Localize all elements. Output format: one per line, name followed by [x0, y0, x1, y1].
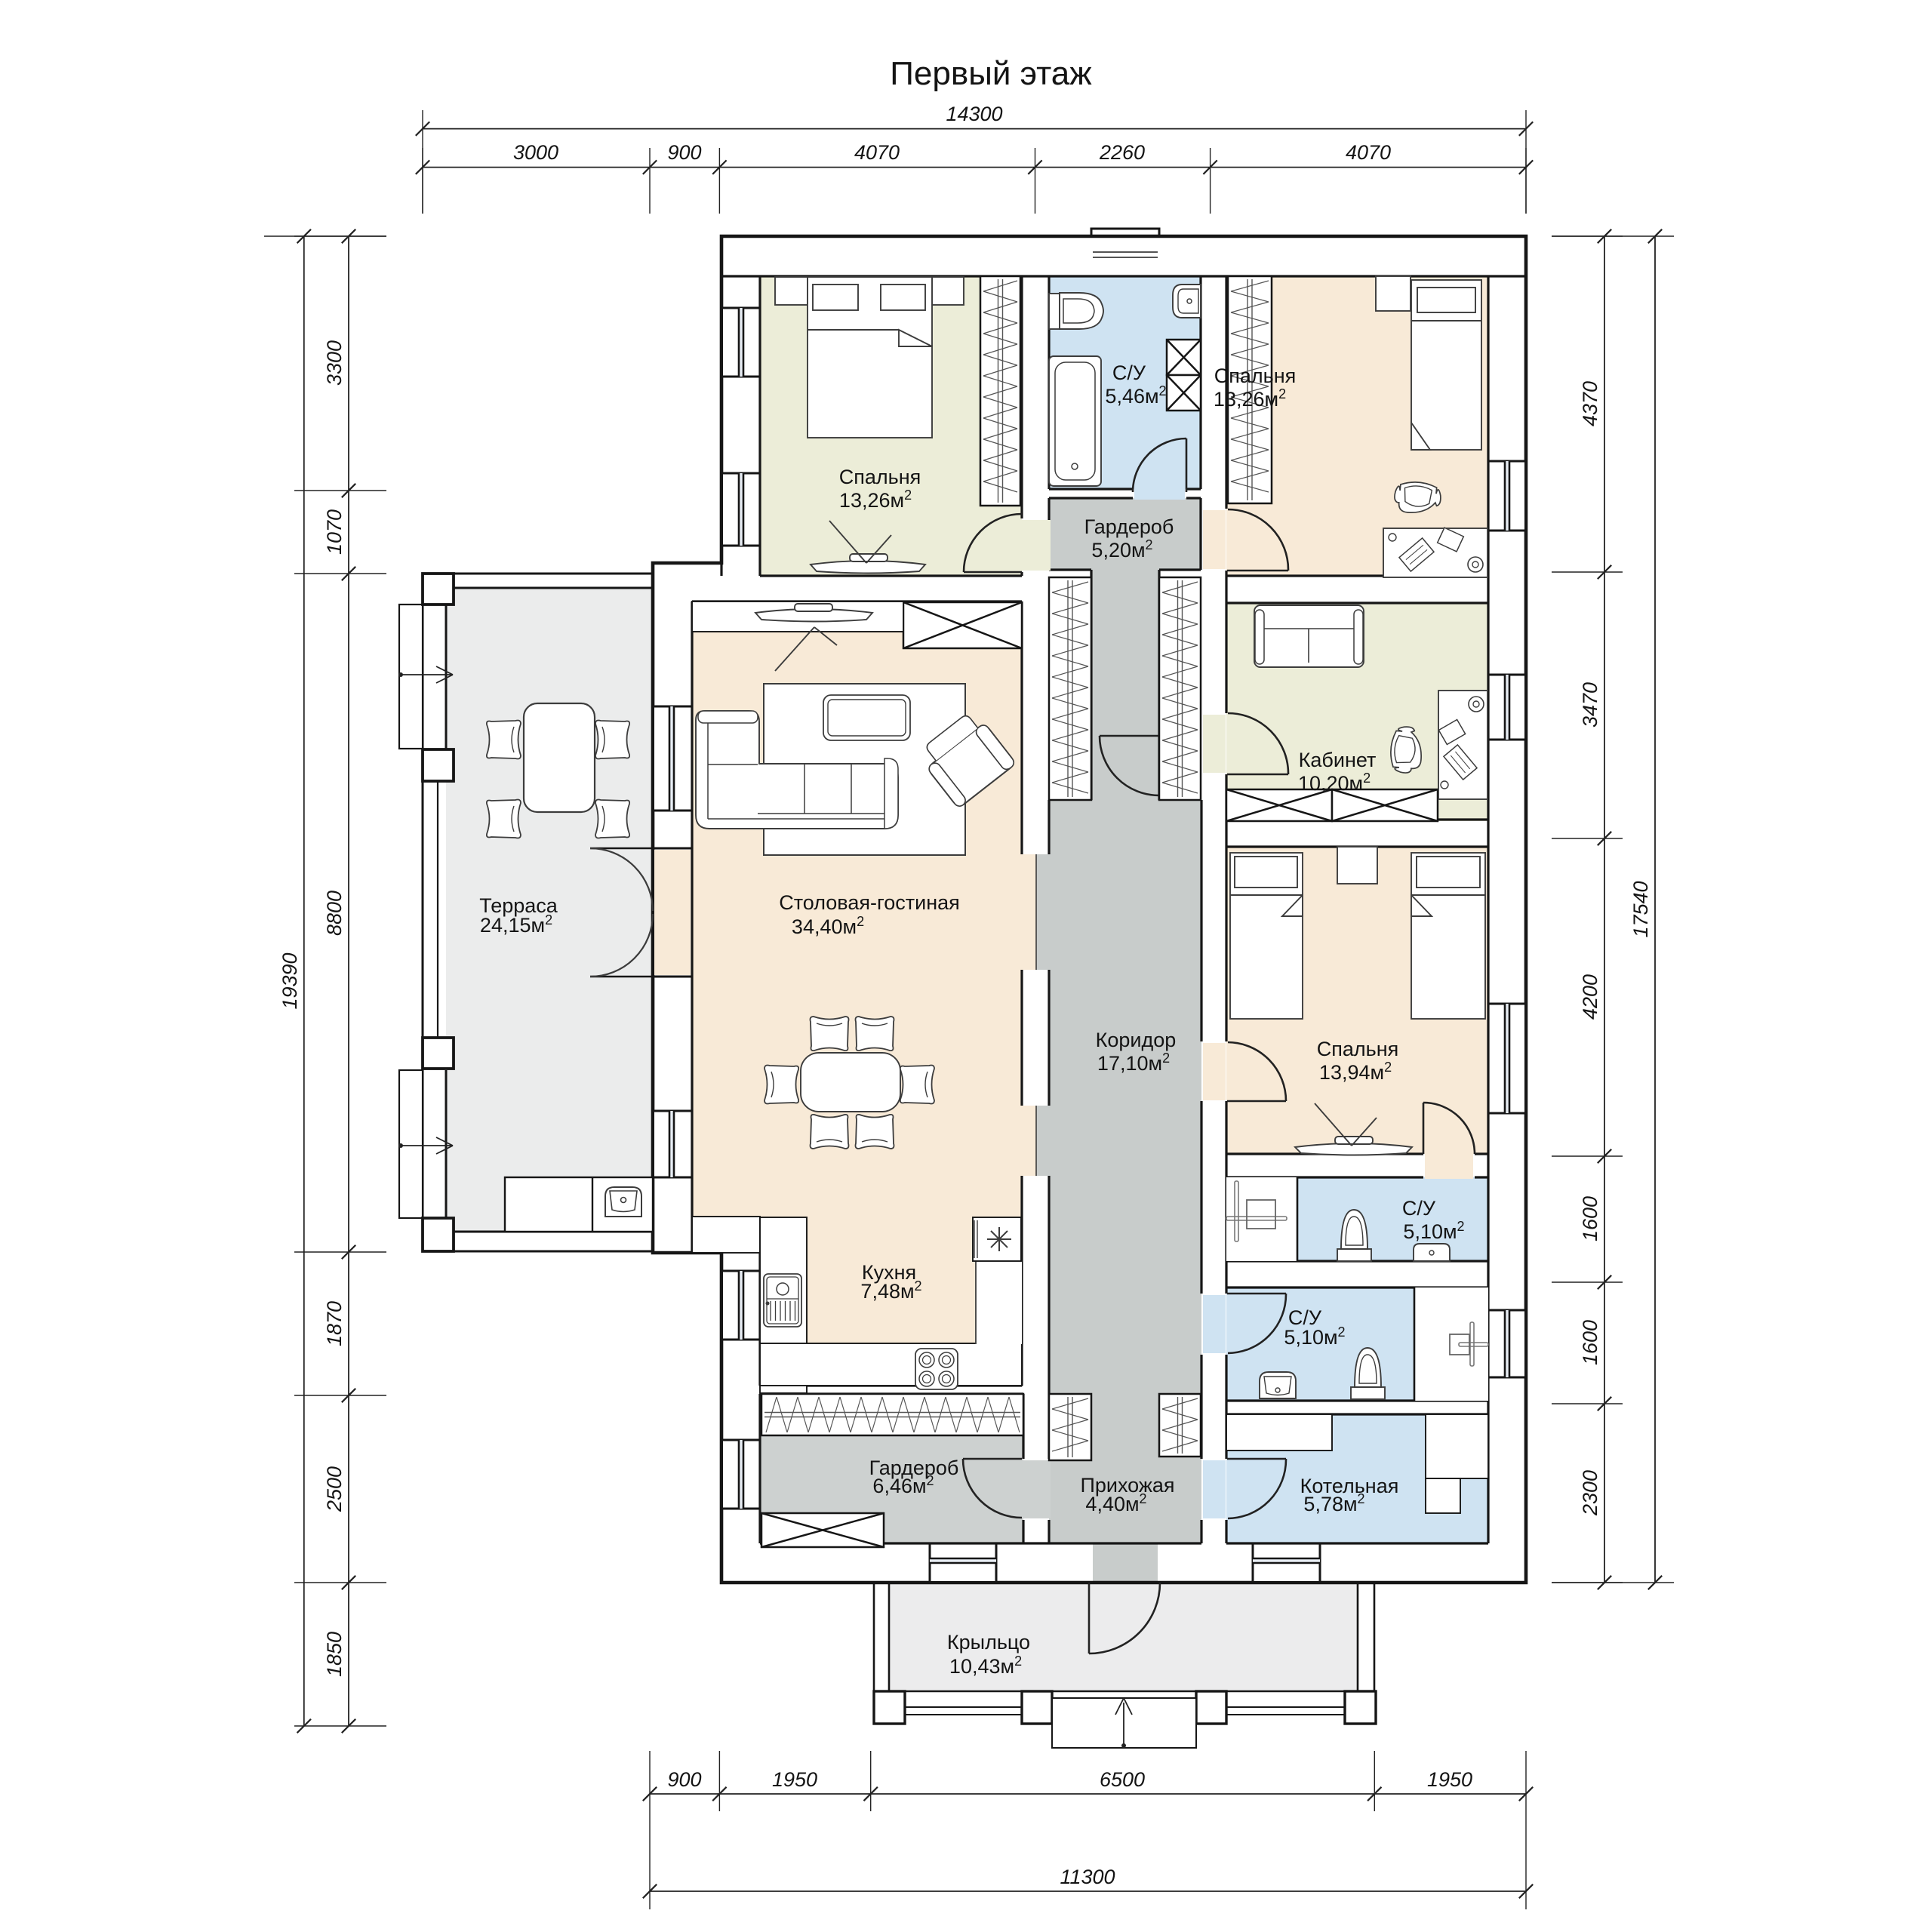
svg-text:900: 900: [667, 141, 701, 164]
svg-text:3000: 3000: [513, 141, 558, 164]
svg-text:С/У: С/У: [1402, 1197, 1436, 1220]
svg-text:5,78м2: 5,78м2: [1303, 1491, 1364, 1515]
svg-text:Гардероб: Гардероб: [1084, 515, 1174, 538]
svg-text:900: 900: [667, 1768, 701, 1791]
svg-text:13,94м2: 13,94м2: [1319, 1060, 1392, 1084]
svg-text:Спальня: Спальня: [839, 466, 921, 488]
svg-text:1600: 1600: [1579, 1320, 1601, 1365]
svg-text:13,26м2: 13,26м2: [839, 488, 912, 512]
svg-text:6500: 6500: [1100, 1768, 1145, 1791]
svg-text:3470: 3470: [1579, 682, 1601, 728]
svg-text:Крыльцо: Крыльцо: [947, 1631, 1030, 1654]
svg-text:4070: 4070: [854, 141, 900, 164]
svg-text:17540: 17540: [1629, 881, 1652, 937]
svg-text:Столовая-гостиная: Столовая-гостиная: [779, 891, 960, 914]
svg-text:34,40м2: 34,40м2: [792, 914, 864, 938]
svg-text:14300: 14300: [946, 103, 1002, 125]
svg-text:5,46м2: 5,46м2: [1105, 383, 1166, 408]
svg-text:10,20м2: 10,20м2: [1298, 771, 1371, 795]
svg-text:1870: 1870: [323, 1301, 346, 1346]
svg-text:3300: 3300: [323, 340, 346, 386]
svg-text:Спальня: Спальня: [1317, 1038, 1399, 1060]
svg-text:4200: 4200: [1579, 974, 1601, 1020]
svg-text:4,40м2: 4,40м2: [1085, 1491, 1146, 1515]
svg-text:С/У: С/У: [1112, 361, 1146, 384]
svg-text:Первый этаж: Первый этаж: [890, 55, 1092, 92]
svg-text:Кабинет: Кабинет: [1299, 749, 1377, 771]
svg-text:17,10м2: 17,10м2: [1097, 1051, 1170, 1075]
svg-text:2300: 2300: [1579, 1470, 1601, 1516]
svg-text:10,43м2: 10,43м2: [949, 1654, 1022, 1678]
svg-text:1950: 1950: [772, 1768, 817, 1791]
svg-text:24,15м2: 24,15м2: [480, 912, 552, 937]
svg-text:1070: 1070: [323, 509, 346, 555]
svg-text:1850: 1850: [323, 1632, 346, 1677]
svg-text:2500: 2500: [323, 1466, 346, 1512]
svg-text:11300: 11300: [1060, 1866, 1115, 1888]
svg-text:5,10м2: 5,10м2: [1284, 1324, 1345, 1349]
svg-text:8800: 8800: [323, 891, 346, 936]
svg-text:2260: 2260: [1099, 141, 1145, 164]
svg-text:7,48м2: 7,48м2: [860, 1278, 921, 1303]
svg-text:4070: 4070: [1346, 141, 1391, 164]
svg-text:13,26м2: 13,26м2: [1214, 386, 1286, 411]
svg-text:6,46м2: 6,46м2: [872, 1473, 934, 1497]
svg-text:5,20м2: 5,20м2: [1091, 537, 1152, 561]
svg-text:1950: 1950: [1427, 1768, 1472, 1791]
svg-text:5,10м2: 5,10м2: [1403, 1219, 1464, 1243]
svg-text:Коридор: Коридор: [1096, 1029, 1177, 1051]
svg-text:Спальня: Спальня: [1214, 365, 1297, 387]
svg-text:19390: 19390: [278, 952, 301, 1009]
svg-text:4370: 4370: [1579, 381, 1601, 426]
svg-text:1600: 1600: [1579, 1196, 1601, 1241]
